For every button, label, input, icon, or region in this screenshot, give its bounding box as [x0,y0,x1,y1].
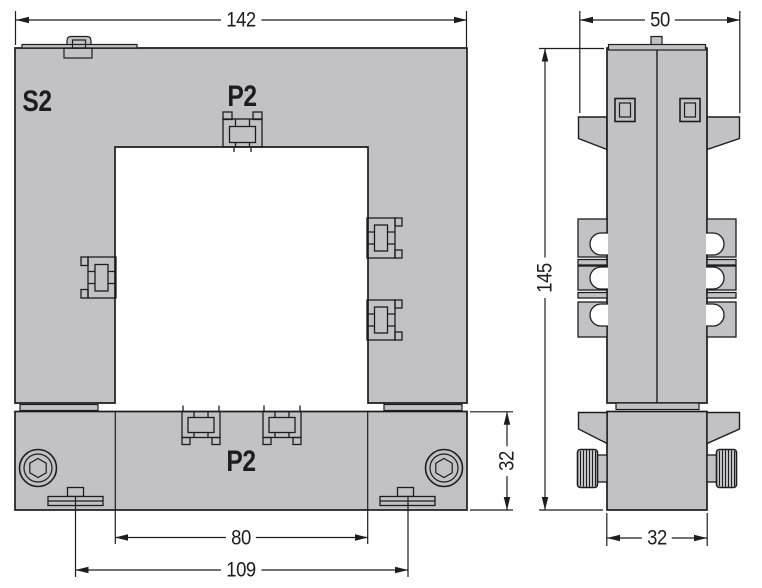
notch [706,304,724,326]
arrow-right-icon [727,17,740,24]
arrow-right-icon [395,567,408,574]
arrow-right-icon [694,535,707,542]
side-bottom-block [607,412,707,511]
arrow-up-icon [504,412,511,425]
arrow-down-icon [504,497,511,510]
joint-strip-left [20,405,98,411]
dim-label-side-height: 145 [535,258,556,298]
side-terminal-fins-right [706,219,736,337]
arrow-left-icon [607,535,620,542]
thumb-screw-right [707,450,737,488]
joint-strip-right [384,405,462,411]
notch [706,267,724,289]
fixing-screw-left [20,450,57,487]
side-upper-wing-left [579,117,608,150]
side-lower-wing-left [579,413,608,444]
arrow-down-icon [542,497,549,510]
side-view [578,37,740,511]
terminal-label-p2-top: P2 [227,82,256,112]
side-terminal-fins-left [578,219,608,337]
arrow-right-icon [454,17,467,24]
side-upper-wing-right [707,117,740,150]
notch [590,267,608,289]
fixing-screw-right [426,450,463,487]
terminal-label-s2: S2 [22,87,51,117]
arrow-up-icon [542,49,549,62]
notch [590,233,608,255]
side-top-plate [609,45,706,51]
arrow-left-icon [76,567,89,574]
technical-drawing-canvas [0,0,762,588]
dim-label-bottom-bar-height: 32 [497,446,518,476]
dim-label-feet-spacing: 109 [221,560,261,581]
terminal-label-p2-bottom: P2 [226,447,255,477]
dimensional-drawing-page: 142 80 109 32 50 145 32 S2 P2 P2 [0,0,762,588]
dim-label-overall-width: 142 [221,10,261,31]
arrow-left-icon [16,17,29,24]
notch [706,233,724,255]
dim-label-side-width: 50 [645,10,675,31]
side-lower-wing-right [707,413,740,444]
arrow-left-icon [580,17,593,24]
dim-label-side-depth: 32 [642,528,672,549]
thumb-screw-left [578,450,608,488]
arrow-right-icon [355,534,368,541]
dim-label-window-width: 80 [226,528,256,549]
arrow-left-icon [115,534,128,541]
notch [590,304,608,326]
side-joint-stub [616,403,699,410]
